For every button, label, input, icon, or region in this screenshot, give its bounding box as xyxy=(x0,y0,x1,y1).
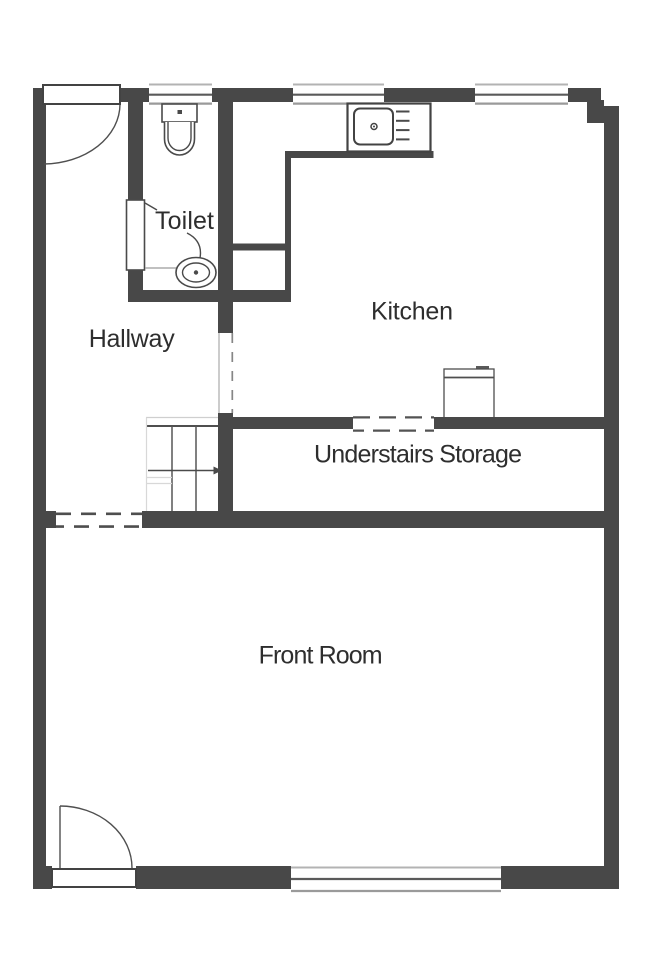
svg-text:Understairs Storage: Understairs Storage xyxy=(314,441,522,469)
svg-text:Toilet: Toilet xyxy=(155,207,214,235)
svg-text:Kitchen: Kitchen xyxy=(371,298,453,326)
svg-text:Hallway: Hallway xyxy=(89,325,176,353)
svg-text:Front Room: Front Room xyxy=(259,642,383,670)
